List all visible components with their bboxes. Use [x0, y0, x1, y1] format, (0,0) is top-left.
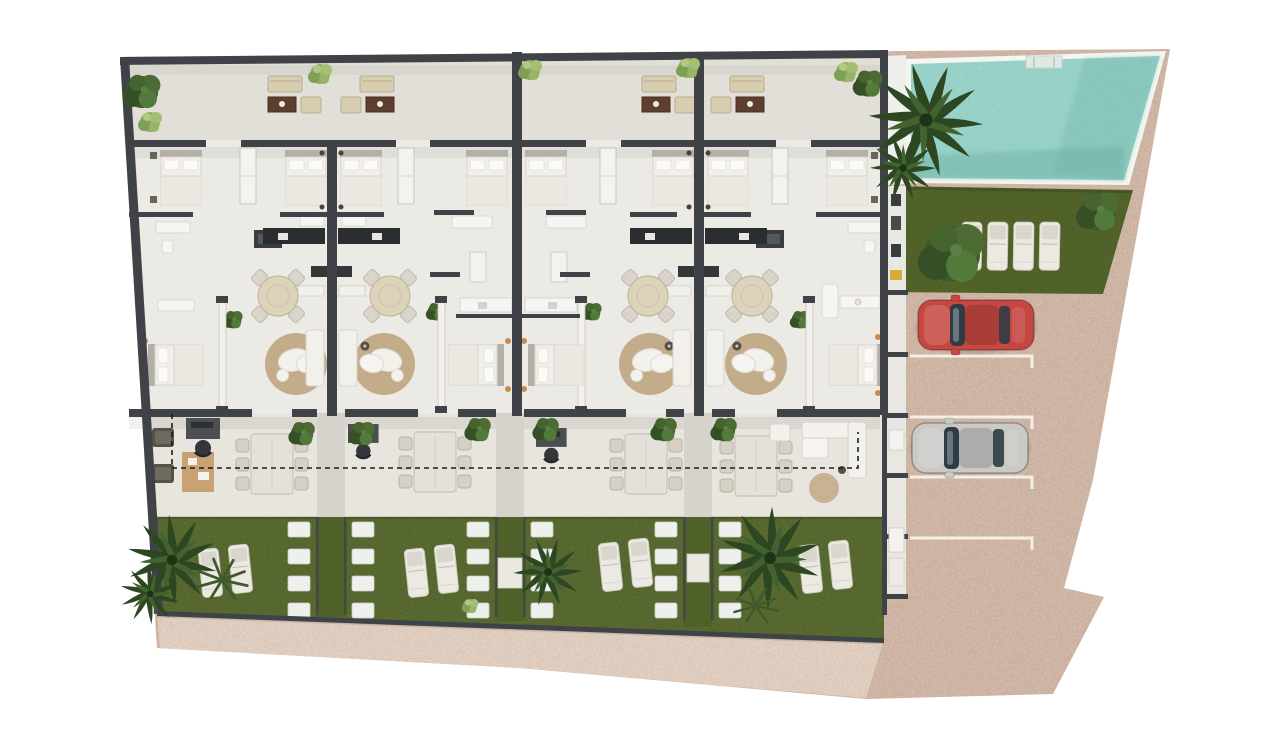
- communal-sun-lounger: [987, 222, 1008, 270]
- bed: [525, 150, 567, 205]
- storage-unit: [889, 430, 904, 450]
- window-bench: [673, 330, 691, 386]
- bed: [285, 150, 327, 205]
- wardrobe: [772, 148, 788, 204]
- wall-right: [880, 50, 888, 415]
- l-sofa-chaise: [802, 438, 828, 458]
- garden-sun-lounger: [628, 538, 653, 588]
- armchair-cushion: [155, 467, 171, 480]
- bed: [148, 344, 203, 386]
- garden-landing: [687, 554, 709, 582]
- lounge-chair: [770, 424, 790, 441]
- utility-box-yellow: [890, 270, 902, 280]
- garden-path-strip: [317, 517, 345, 617]
- pool-step-entry: [1026, 56, 1062, 68]
- entry-path: [496, 413, 524, 517]
- fence-right: [882, 415, 887, 615]
- garden-sun-lounger: [434, 544, 459, 594]
- garden-sun-lounger: [404, 548, 429, 598]
- wardrobe: [600, 148, 616, 204]
- window-bench: [706, 330, 724, 386]
- garden-sun-lounger: [828, 540, 853, 590]
- party-wall: [512, 52, 522, 416]
- window-bench: [339, 330, 357, 386]
- round-dining-table: [362, 268, 417, 323]
- porch-rug: [809, 473, 839, 503]
- wall-row-terrace: [129, 140, 880, 147]
- entry-path: [317, 413, 345, 517]
- wardrobe: [240, 148, 256, 204]
- utility-box: [891, 216, 901, 230]
- mat-item: [198, 472, 209, 480]
- round-dining-table: [724, 268, 779, 323]
- bed: [449, 344, 504, 386]
- terrace-shadow: [129, 65, 884, 75]
- window-bench: [306, 330, 324, 386]
- entry-path: [684, 413, 712, 517]
- wardrobe: [398, 148, 414, 204]
- floor-plan-canvas: [0, 0, 1280, 731]
- storage-unit: [889, 558, 904, 586]
- car-red: [918, 295, 1034, 355]
- round-dining-table: [250, 268, 305, 323]
- site-plan-svg: [0, 0, 1280, 731]
- bed: [829, 344, 884, 386]
- party-wall: [327, 140, 337, 416]
- utility-box: [891, 194, 901, 206]
- communal-sun-lounger: [1039, 222, 1060, 270]
- utility-box: [891, 244, 901, 257]
- garden-sun-lounger: [228, 544, 253, 594]
- communal-sun-lounger: [1013, 222, 1034, 270]
- bed: [826, 150, 868, 205]
- bed: [340, 150, 382, 205]
- patio-dining-set: [720, 436, 792, 496]
- armchair-cushion: [155, 431, 171, 444]
- l-sofa: [848, 422, 866, 478]
- bed: [528, 344, 583, 386]
- mat-item: [188, 458, 197, 465]
- patio-dining-set: [399, 432, 471, 492]
- bed: [466, 150, 508, 205]
- party-wall: [694, 52, 704, 416]
- bed: [652, 150, 694, 205]
- patio-dining-set: [610, 434, 682, 494]
- bed: [707, 150, 749, 205]
- storage-unit: [889, 528, 904, 552]
- garden-sun-lounger: [598, 542, 623, 592]
- bed: [160, 150, 202, 205]
- car-silver: [912, 418, 1028, 478]
- round-dining-table: [620, 268, 675, 323]
